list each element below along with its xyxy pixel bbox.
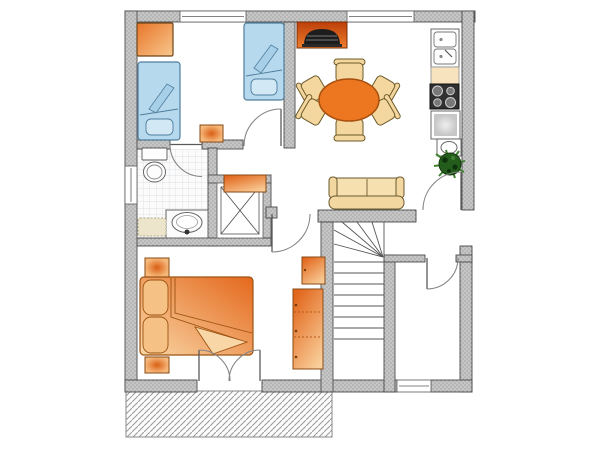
- single-bed-left: [138, 62, 180, 140]
- door-room-bottom-right: [427, 258, 458, 289]
- wall-bathroom-bottom: [137, 238, 271, 246]
- vanity-basin: [166, 210, 208, 238]
- wall-bathroom-right: [208, 148, 217, 246]
- wall-stair-right: [384, 255, 395, 392]
- window-top-right: [347, 11, 414, 22]
- sofa-arm-left: [329, 177, 337, 198]
- wall-bottom-right: [431, 380, 472, 392]
- sofa: [329, 177, 404, 209]
- wall-top: [125, 11, 475, 22]
- half-wall-sofa: [318, 210, 416, 222]
- window-top-left: [180, 11, 246, 22]
- bath-mat: [138, 218, 166, 236]
- wall-hall-a: [384, 255, 425, 262]
- sofa-arm-right: [396, 177, 404, 198]
- sofa-back: [329, 196, 404, 209]
- fireplace-stove: [297, 22, 347, 48]
- bedroom-bottom-left: [140, 257, 325, 373]
- window-left: [125, 166, 137, 204]
- wardrobe: [137, 23, 173, 56]
- hall-dresser: [224, 175, 266, 192]
- pillow: [143, 317, 168, 353]
- floor-plan: [0, 0, 600, 450]
- door-bedroom1: [244, 109, 281, 146]
- double-bed: [140, 277, 253, 355]
- wall-bedroom1-dining: [284, 22, 295, 148]
- living-area: [329, 177, 404, 209]
- wall-bottom-left: [125, 380, 197, 392]
- dining-set: [295, 59, 401, 141]
- dining-chair-bottom: [334, 119, 365, 141]
- floor-plan-canvas: [0, 0, 600, 450]
- pillow: [143, 280, 168, 315]
- winder-fan: [334, 222, 383, 257]
- wall-right-upper: [462, 11, 474, 210]
- kitchen-counter: [431, 67, 459, 84]
- terrace-hatched: [126, 391, 332, 437]
- winder-staircase: [334, 222, 384, 339]
- bed-pillow: [146, 119, 173, 135]
- small-cabinet: [302, 257, 325, 284]
- nightstand-top: [145, 258, 169, 277]
- tap: [185, 230, 190, 235]
- cooktop: [430, 84, 459, 109]
- window-bottom: [397, 380, 431, 392]
- appliance-dishwasher: [431, 111, 460, 139]
- tall-wardrobe: [293, 289, 323, 369]
- kitchen: [430, 29, 465, 178]
- nightstand-bottom: [145, 357, 169, 373]
- kitchen-double-sink: [431, 29, 459, 67]
- single-bed-right: [244, 23, 284, 100]
- door-bedroom2: [272, 214, 310, 252]
- wall-right-lower: [460, 246, 472, 392]
- side-table: [200, 125, 223, 142]
- bedroom-top-left: [137, 23, 284, 142]
- dining-room: [295, 22, 401, 141]
- dining-table: [319, 79, 379, 121]
- bed-pillow: [251, 79, 277, 95]
